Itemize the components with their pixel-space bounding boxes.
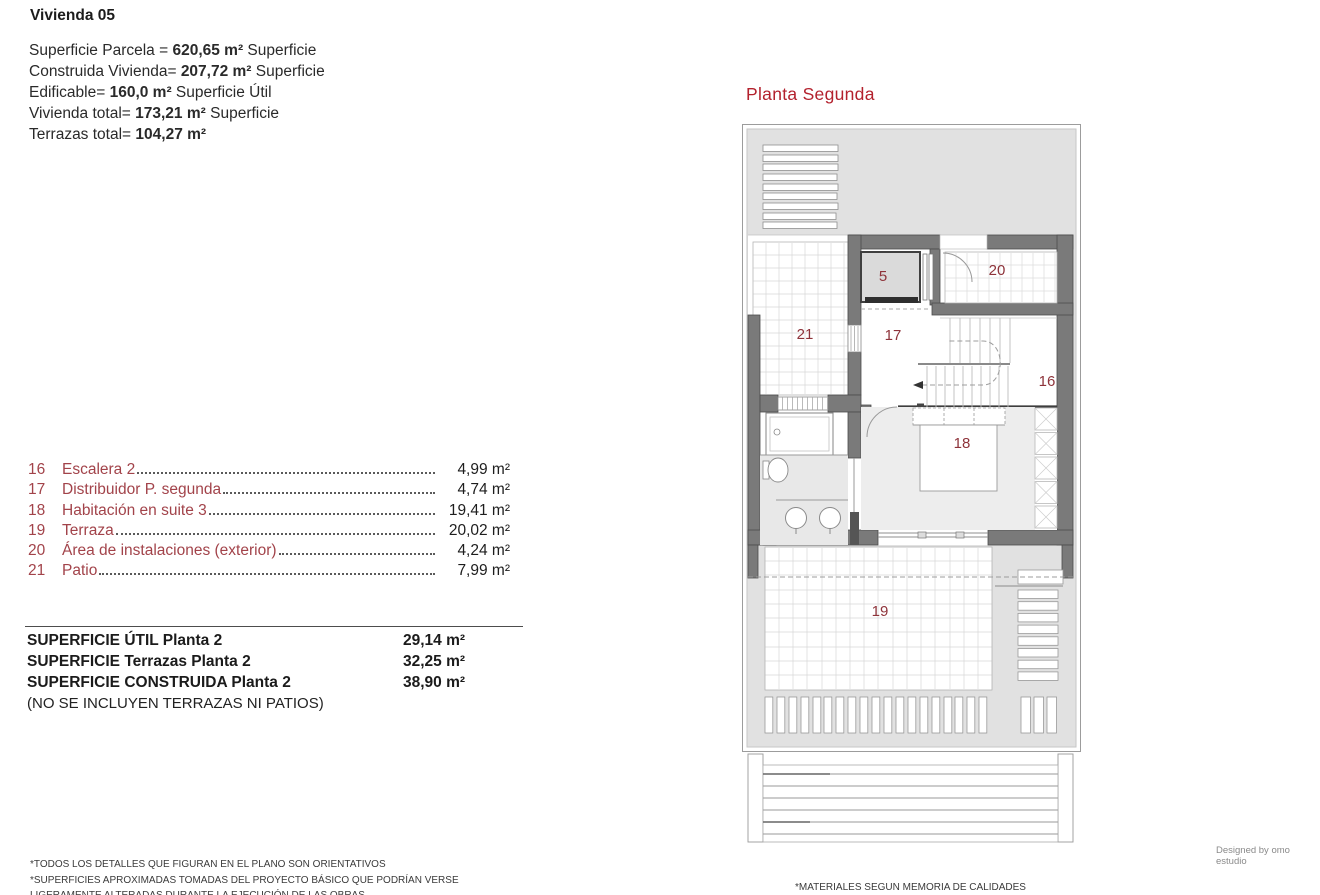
footnote-line: *TODOS LOS DETALLES QUE FIGURAN EN EL PL…: [30, 859, 459, 875]
totals-value: 29,14 m²: [403, 632, 465, 650]
totals-value: 32,25 m²: [403, 653, 465, 671]
area-value: 160,0 m²: [110, 84, 172, 101]
dotted-leader: [99, 573, 435, 575]
area-line: Construida Vivienda= 207,72 m² Superfici…: [29, 61, 374, 82]
room-row: 17Distribuidor P. segunda4,74 m²: [28, 481, 510, 501]
plan-title: Planta Segunda: [746, 84, 875, 105]
room-label-21: 21: [792, 326, 818, 343]
room-number: 20: [28, 542, 62, 560]
totals-row: SUPERFICIE ÚTIL Planta 229,14 m²: [27, 632, 527, 653]
dotted-leader: [116, 533, 435, 535]
dotted-leader: [137, 472, 435, 474]
area-value: 620,65 m²: [172, 42, 243, 59]
room-area: 7,99 m²: [438, 562, 510, 580]
area-line: Terrazas total= 104,27 m²: [29, 124, 374, 145]
plan-sheet: Vivienda 05 Superficie Parcela = 620,65 …: [0, 0, 1320, 895]
totals-rows: SUPERFICIE ÚTIL Planta 229,14 m²SUPERFIC…: [27, 632, 527, 694]
area-line: Superficie Parcela = 620,65 m² Superfici…: [29, 40, 374, 61]
room-number: 21: [28, 562, 62, 580]
room-number: 16: [28, 461, 62, 479]
room-number: 18: [28, 502, 62, 520]
room-label-19: 19: [867, 603, 893, 620]
totals-label: SUPERFICIE CONSTRUIDA Planta 2: [27, 674, 403, 692]
room-label-16: 16: [1034, 373, 1060, 390]
totals-row: SUPERFICIE CONSTRUIDA Planta 238,90 m²: [27, 674, 527, 695]
totals-note: (NO SE INCLUYEN TERRAZAS NI PATIOS): [27, 695, 527, 712]
footnote-materials: *MATERIALES SEGUN MEMORIA DE CALIDADES: [795, 882, 1026, 893]
room-label-17: 17: [880, 327, 906, 344]
room-name: Área de instalaciones (exterior): [62, 542, 277, 560]
room-row: 19Terraza20,02 m²: [28, 522, 510, 542]
room-number: 17: [28, 481, 62, 499]
designer-credit: Designed by omo estudio: [1216, 845, 1320, 867]
room-name: Distribuidor P. segunda: [62, 481, 221, 499]
room-area: 20,02 m²: [438, 522, 510, 540]
room-name: Terraza: [62, 522, 114, 540]
room-area: 4,24 m²: [438, 542, 510, 560]
totals-row: SUPERFICIE Terrazas Planta 232,25 m²: [27, 653, 527, 674]
area-value: 207,72 m²: [181, 63, 252, 80]
area-value: 173,21 m²: [135, 105, 206, 122]
floorplan: 5202117161819: [740, 120, 1085, 852]
dotted-leader: [209, 513, 435, 515]
totals-block: SUPERFICIE ÚTIL Planta 229,14 m²SUPERFIC…: [27, 632, 527, 712]
room-number: 19: [28, 522, 62, 540]
dotted-leader: [223, 492, 435, 494]
dotted-leader: [279, 553, 435, 555]
room-name: Escalera 2: [62, 461, 135, 479]
area-line: Vivienda total= 173,21 m² Superficie: [29, 103, 374, 124]
room-area: 19,41 m²: [438, 502, 510, 520]
room-row: 18Habitación en suite 319,41 m²: [28, 502, 510, 522]
plan-room-labels: 5202117161819: [740, 120, 1085, 852]
room-row: 21Patio7,99 m²: [28, 562, 510, 582]
room-label-5: 5: [870, 268, 896, 285]
area-value: 104,27 m²: [135, 126, 206, 143]
footnote-line: *SUPERFICIES APROXIMADAS TOMADAS DEL PRO…: [30, 875, 459, 891]
area-summary: Superficie Parcela = 620,65 m² Superfici…: [29, 40, 374, 145]
totals-label: SUPERFICIE ÚTIL Planta 2: [27, 632, 403, 650]
room-row: 20Área de instalaciones (exterior)4,24 m…: [28, 542, 510, 562]
room-row: 16Escalera 24,99 m²: [28, 461, 510, 481]
footnote-line: LIGERAMENTE ALTERADAS DURANTE LA EJECUCI…: [30, 890, 459, 895]
room-name: Habitación en suite 3: [62, 502, 207, 520]
totals-divider: [25, 626, 523, 627]
area-line: Edificable= 160,0 m² Superficie Útil: [29, 82, 374, 103]
room-name: Patio: [62, 562, 97, 580]
room-area: 4,99 m²: [438, 461, 510, 479]
room-label-20: 20: [984, 262, 1010, 279]
footnotes-left: *TODOS LOS DETALLES QUE FIGURAN EN EL PL…: [30, 859, 459, 895]
page-title: Vivienda 05: [30, 7, 115, 25]
room-label-18: 18: [949, 435, 975, 452]
totals-value: 38,90 m²: [403, 674, 465, 692]
room-area: 4,74 m²: [438, 481, 510, 499]
totals-label: SUPERFICIE Terrazas Planta 2: [27, 653, 403, 671]
room-list: 16Escalera 24,99 m²17Distribuidor P. seg…: [28, 461, 510, 583]
